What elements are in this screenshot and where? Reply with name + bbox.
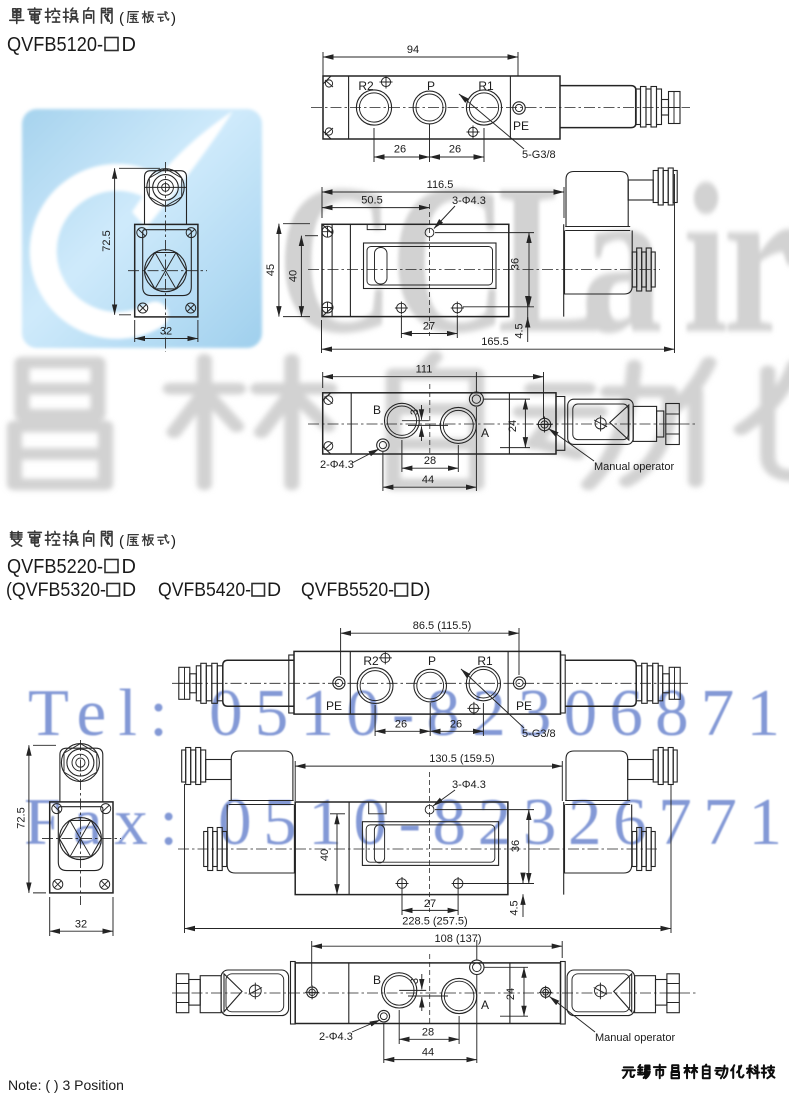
svg-text:116.5: 116.5 xyxy=(427,179,454,191)
svg-text:72.5: 72.5 xyxy=(101,230,113,251)
svg-text:): ) xyxy=(424,579,431,601)
svg-text:5-G3/8: 5-G3/8 xyxy=(522,149,556,161)
svg-text:27: 27 xyxy=(423,321,435,333)
svg-text:R1: R1 xyxy=(477,654,493,668)
svg-text:QVFB5120-: QVFB5120- xyxy=(7,34,103,56)
svg-text:36: 36 xyxy=(510,258,522,270)
svg-text:D: D xyxy=(122,34,136,56)
svg-text:4.5: 4.5 xyxy=(514,323,526,338)
svg-text:3-Φ4.3: 3-Φ4.3 xyxy=(452,195,486,207)
svg-text:165.5: 165.5 xyxy=(481,336,509,348)
svg-text:28: 28 xyxy=(422,1026,434,1038)
svg-text:PE: PE xyxy=(516,699,532,713)
svg-text:R2: R2 xyxy=(358,79,374,93)
svg-text:): ) xyxy=(171,533,176,550)
svg-text:R1: R1 xyxy=(478,79,494,93)
svg-text:A: A xyxy=(481,998,489,1012)
svg-text:Manual operator: Manual operator xyxy=(594,461,674,473)
svg-text:26: 26 xyxy=(450,718,462,730)
svg-text:28: 28 xyxy=(424,455,436,467)
svg-text:32: 32 xyxy=(75,919,87,931)
svg-text:45: 45 xyxy=(265,264,277,276)
svg-text:Manual operator: Manual operator xyxy=(595,1032,675,1044)
svg-text:24: 24 xyxy=(505,988,517,1000)
svg-text:72.5: 72.5 xyxy=(16,807,28,828)
svg-text:94: 94 xyxy=(407,44,419,56)
svg-text:44: 44 xyxy=(422,474,434,486)
svg-text:(QVFB5320-: (QVFB5320- xyxy=(6,579,106,601)
svg-text:QVFB5420-: QVFB5420- xyxy=(158,579,251,601)
svg-text:228.5 (257.5): 228.5 (257.5) xyxy=(402,916,467,928)
svg-text:PE: PE xyxy=(326,699,342,713)
svg-text:D: D xyxy=(267,579,281,601)
svg-text:3-Φ4.3: 3-Φ4.3 xyxy=(452,779,486,791)
svg-text:50.5: 50.5 xyxy=(361,195,382,207)
svg-text:D: D xyxy=(122,556,136,578)
svg-text:111: 111 xyxy=(416,364,433,376)
svg-text:): ) xyxy=(171,10,176,27)
svg-text:3: 3 xyxy=(409,978,421,984)
svg-text:26: 26 xyxy=(449,144,461,156)
svg-text:4.5: 4.5 xyxy=(509,900,521,915)
svg-text:2-Φ4.3: 2-Φ4.3 xyxy=(320,459,354,471)
svg-text:D: D xyxy=(410,579,424,601)
svg-text:130.5 (159.5): 130.5 (159.5) xyxy=(429,753,494,765)
svg-text:108 (137): 108 (137) xyxy=(434,933,481,945)
svg-text:CCLair: CCLair xyxy=(277,141,789,379)
svg-text:R2: R2 xyxy=(363,654,379,668)
svg-text:Note: ( ) 3 Position: Note: ( ) 3 Position xyxy=(8,1077,124,1093)
svg-text:B: B xyxy=(373,403,381,417)
svg-text:A: A xyxy=(481,426,489,440)
svg-text:27: 27 xyxy=(424,898,436,910)
svg-text:(: ( xyxy=(119,10,124,27)
svg-text:P: P xyxy=(427,79,435,93)
svg-text:B: B xyxy=(373,973,381,987)
svg-text:44: 44 xyxy=(422,1047,434,1059)
svg-text:QVFB5220-: QVFB5220- xyxy=(7,556,103,578)
svg-text:3: 3 xyxy=(409,409,421,415)
svg-text:24: 24 xyxy=(507,420,519,432)
svg-text:P: P xyxy=(428,654,436,668)
svg-text:32: 32 xyxy=(160,326,172,338)
svg-text:40: 40 xyxy=(319,849,331,861)
svg-text:40: 40 xyxy=(288,270,300,282)
svg-text:QVFB5520-: QVFB5520- xyxy=(301,579,394,601)
svg-text:5-G3/8: 5-G3/8 xyxy=(522,728,556,740)
svg-text:36: 36 xyxy=(510,840,522,852)
svg-text:26: 26 xyxy=(394,144,406,156)
svg-text:(: ( xyxy=(119,533,124,550)
svg-text:86.5 (115.5): 86.5 (115.5) xyxy=(413,620,472,632)
svg-text:D: D xyxy=(122,579,136,601)
svg-text:PE: PE xyxy=(513,119,529,133)
svg-text:26: 26 xyxy=(395,718,407,730)
svg-text:2-Φ4.3: 2-Φ4.3 xyxy=(319,1031,353,1043)
